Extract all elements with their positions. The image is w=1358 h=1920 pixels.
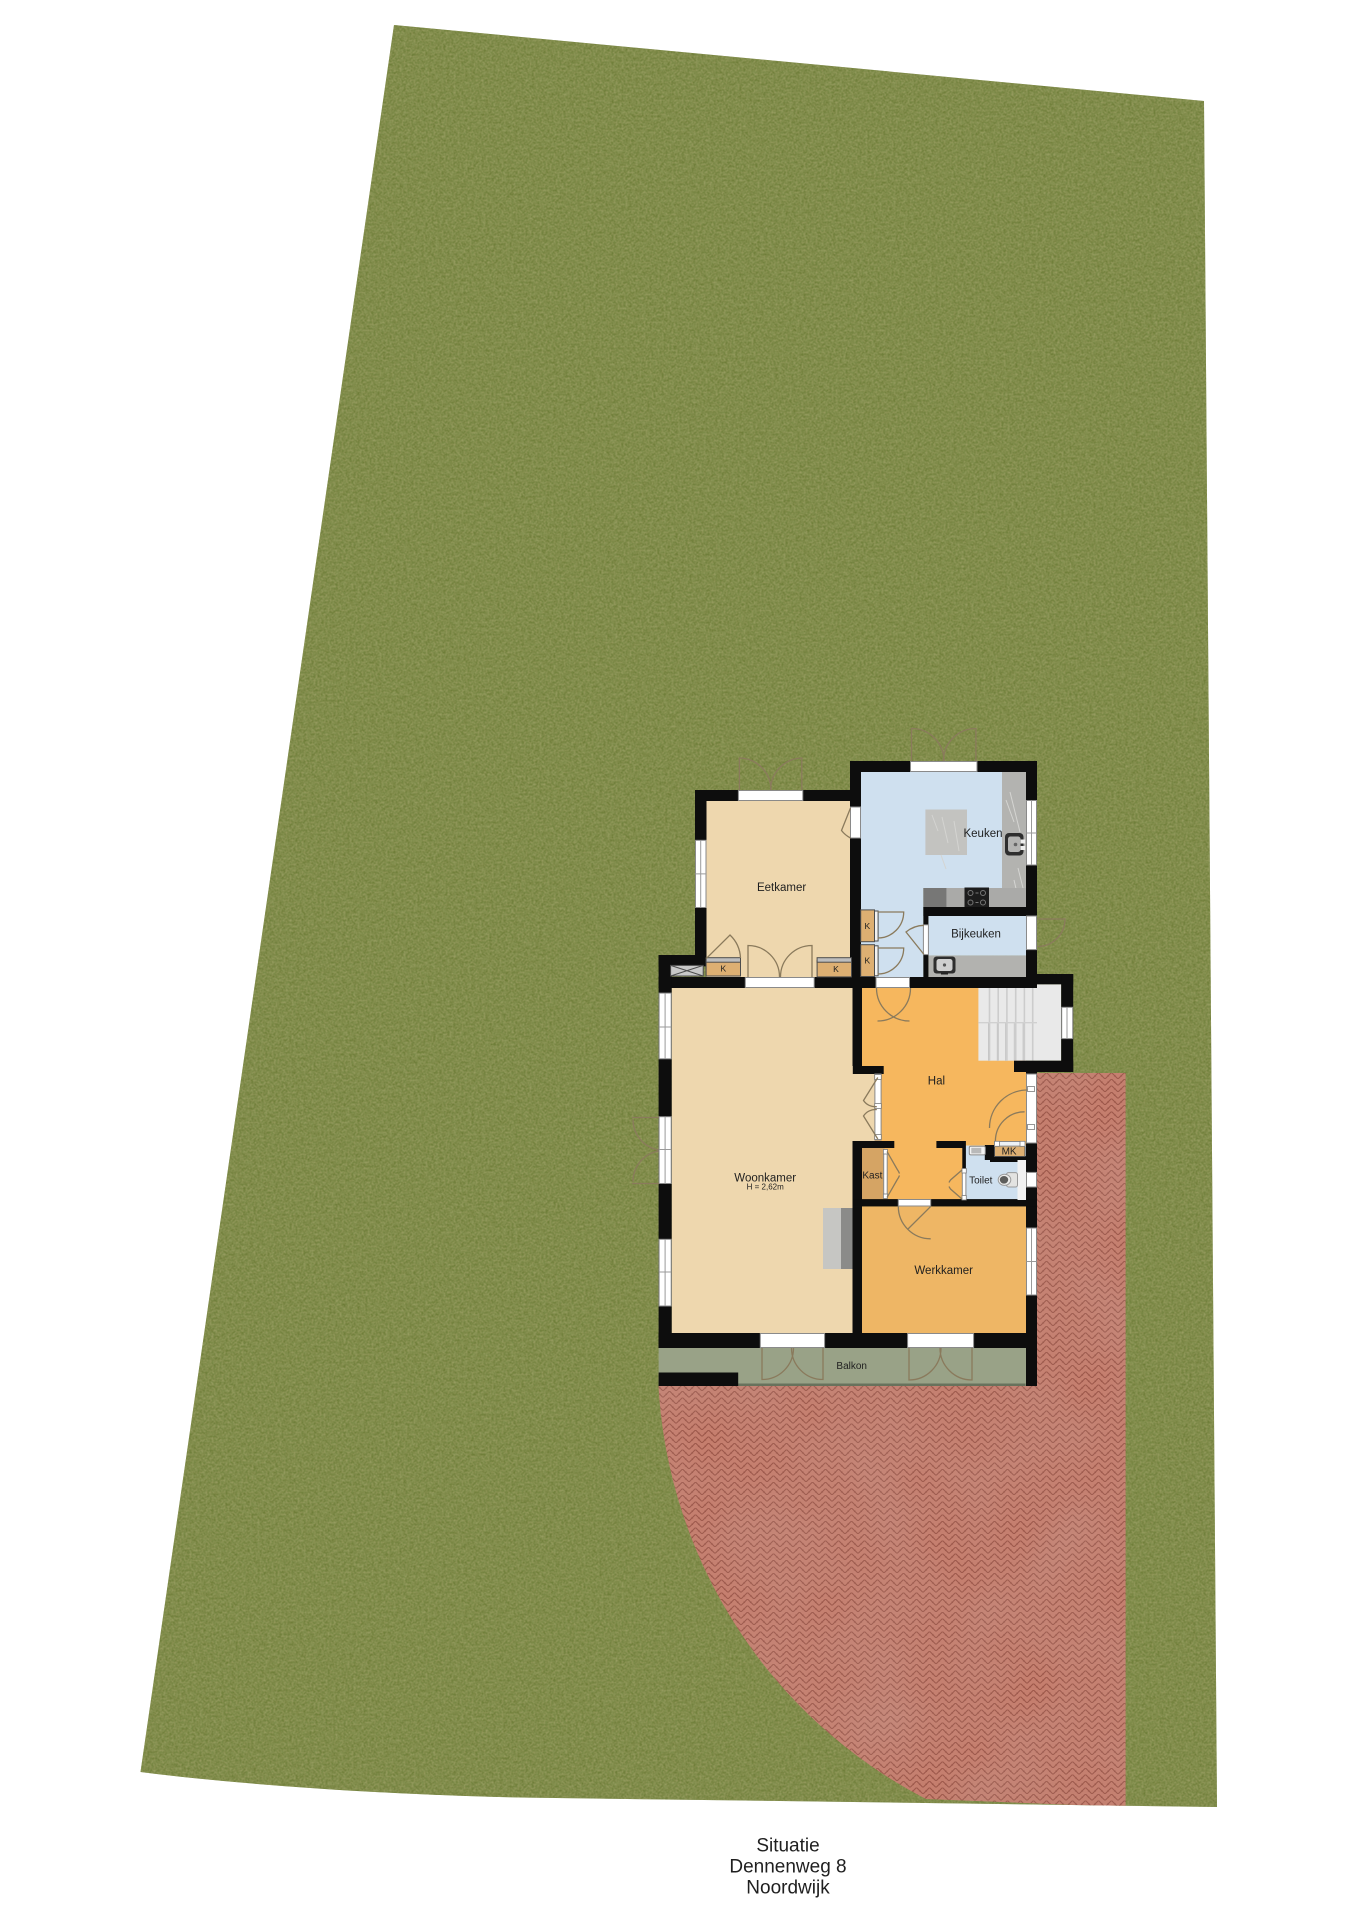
svg-text:Keuken: Keuken xyxy=(963,828,1002,840)
svg-text:Bijkeuken: Bijkeuken xyxy=(951,929,1001,941)
svg-text:K: K xyxy=(864,921,870,931)
svg-text:Situatie: Situatie xyxy=(756,1836,819,1857)
svg-text:Noordwijk: Noordwijk xyxy=(746,1878,830,1899)
svg-text:K: K xyxy=(833,964,839,974)
svg-text:Balkon: Balkon xyxy=(836,1361,867,1372)
svg-text:H = 2,62m: H = 2,62m xyxy=(747,1183,784,1192)
svg-text:Kast: Kast xyxy=(862,1170,882,1181)
svg-text:Hal: Hal xyxy=(928,1076,945,1088)
svg-text:MK: MK xyxy=(1002,1146,1017,1157)
svg-text:Werkkamer: Werkkamer xyxy=(914,1265,973,1277)
svg-text:K: K xyxy=(720,963,726,973)
svg-text:Eetkamer: Eetkamer xyxy=(757,882,806,894)
svg-text:Dennenweg 8: Dennenweg 8 xyxy=(729,1857,846,1878)
svg-text:K: K xyxy=(864,955,870,965)
svg-text:Toilet: Toilet xyxy=(969,1175,993,1186)
